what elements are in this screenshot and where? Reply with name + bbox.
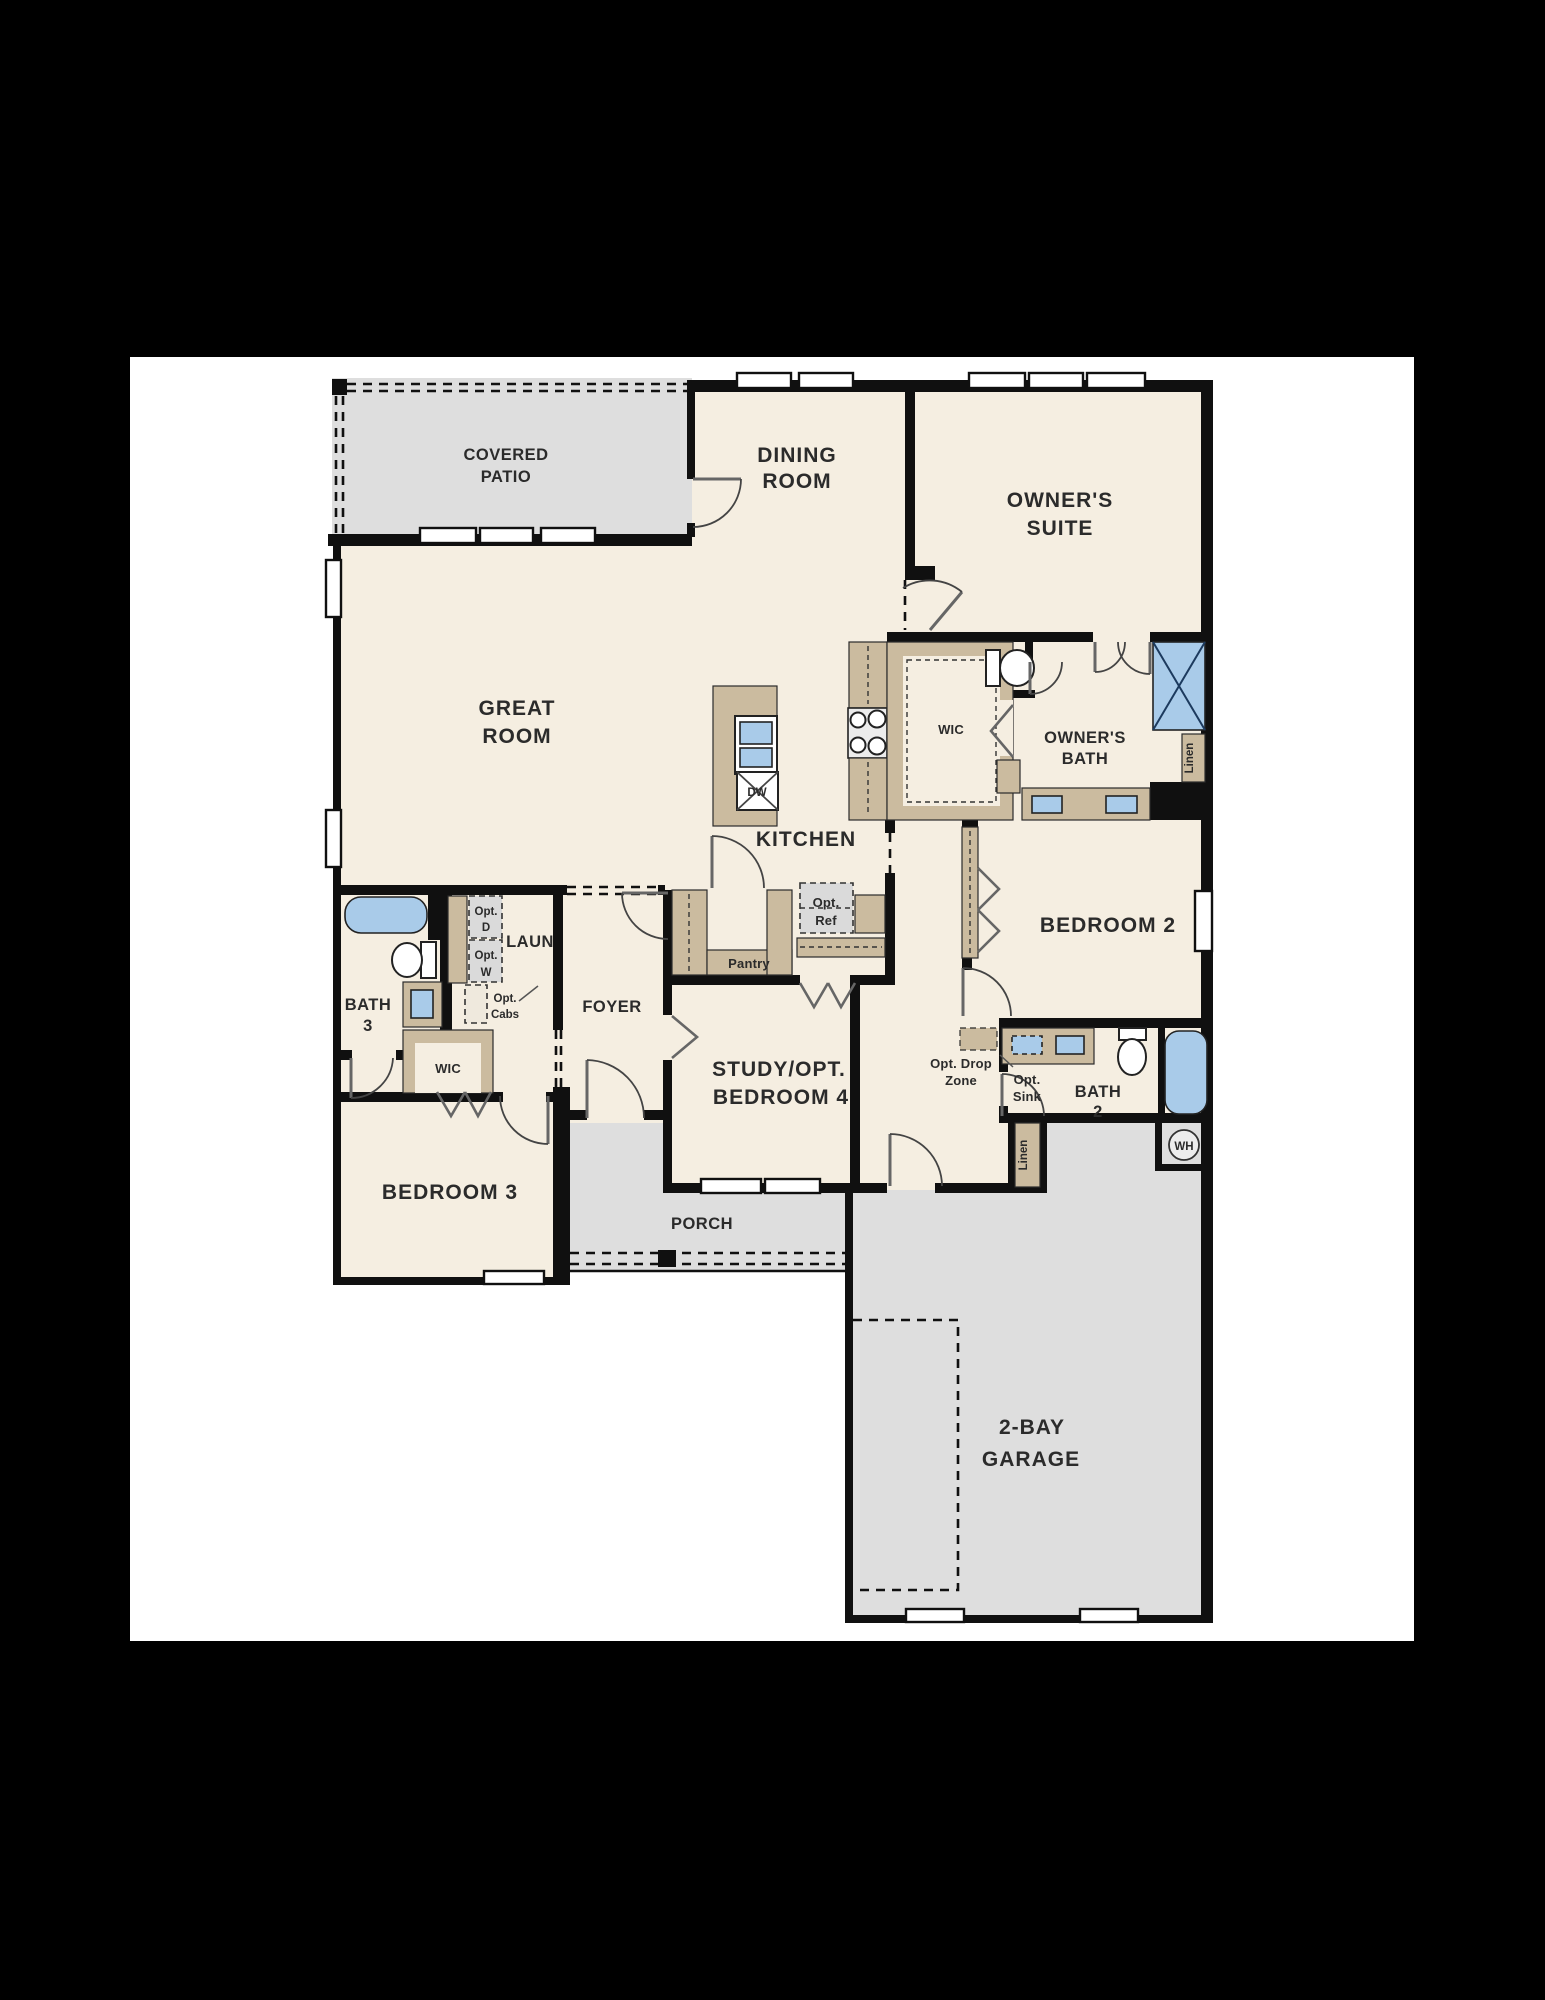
study-label: STUDY/OPT. bbox=[712, 1058, 846, 1081]
opt-washer-label: Opt. bbox=[475, 950, 498, 962]
opt-dryer-label: D bbox=[482, 922, 490, 934]
opt-ref-label: Opt. bbox=[813, 895, 840, 910]
opt-ref-label: Ref bbox=[815, 913, 837, 928]
opt-washer-label: W bbox=[481, 967, 492, 979]
opt-sink-label: Sink bbox=[1013, 1089, 1042, 1104]
sink-basin bbox=[740, 722, 772, 744]
burner-icon bbox=[851, 713, 866, 728]
window-icon bbox=[541, 528, 595, 543]
window-icon bbox=[420, 528, 476, 543]
toilet-bowl bbox=[392, 943, 422, 977]
toilet-bowl bbox=[1118, 1039, 1146, 1075]
owner-linen-label: Linen bbox=[1184, 743, 1196, 774]
window-icon bbox=[969, 373, 1025, 388]
window-icon bbox=[765, 1179, 820, 1193]
bath3-label: BATH bbox=[345, 996, 392, 1014]
sink-basin bbox=[740, 748, 772, 767]
window-icon bbox=[906, 1609, 964, 1622]
opt-cabs-label: Cabs bbox=[491, 1009, 519, 1021]
foyer-label: FOYER bbox=[582, 998, 641, 1016]
owners-suite-label: SUITE bbox=[1027, 517, 1094, 540]
window-icon bbox=[480, 528, 533, 543]
window-icon bbox=[1080, 1609, 1138, 1622]
bathtub bbox=[1165, 1031, 1207, 1114]
bedroom2-label: BEDROOM 2 bbox=[1040, 914, 1176, 937]
bedroom3-label: BEDROOM 3 bbox=[382, 1181, 518, 1204]
opt-sink-basin bbox=[1012, 1036, 1042, 1054]
dishwasher-label: DW bbox=[747, 787, 766, 799]
garage-floor bbox=[845, 1123, 1213, 1623]
kitchen-label: KITCHEN bbox=[756, 828, 856, 851]
bathtub bbox=[345, 897, 427, 933]
window-icon bbox=[701, 1179, 761, 1193]
burner-icon bbox=[851, 738, 866, 753]
covered-patio-label: COVERED bbox=[463, 446, 548, 464]
dining-room-label: DINING bbox=[757, 444, 837, 467]
owners-bath-label: OWNER'S bbox=[1044, 729, 1126, 747]
burner-icon bbox=[869, 738, 886, 755]
covered-patio-label: PATIO bbox=[481, 468, 531, 486]
bath2-sink bbox=[1056, 1036, 1084, 1054]
great-room-label: GREAT bbox=[479, 697, 556, 720]
pantry-label: Pantry bbox=[728, 956, 770, 971]
opt-drop-zone-label: Opt. Drop bbox=[930, 1056, 992, 1071]
opt-cabs-box bbox=[465, 985, 487, 1023]
porch-post bbox=[658, 1250, 676, 1267]
window-icon bbox=[484, 1271, 544, 1284]
wic-wall-step bbox=[997, 760, 1020, 793]
porch-label: PORCH bbox=[671, 1215, 733, 1233]
window-icon bbox=[799, 373, 853, 388]
window-icon bbox=[1029, 373, 1083, 388]
bath3-label: 3 bbox=[363, 1017, 373, 1035]
owners-suite-label: OWNER'S bbox=[1007, 489, 1114, 512]
opt-drop-zone-box bbox=[960, 1028, 997, 1050]
opt-cabs-label: Opt. bbox=[494, 993, 517, 1005]
window-icon bbox=[326, 560, 341, 617]
opt-drop-zone-label: Zone bbox=[945, 1073, 977, 1088]
water-heater-label: WH bbox=[1174, 1141, 1193, 1153]
opt-dryer-label: Opt. bbox=[475, 906, 498, 918]
window-icon bbox=[1195, 891, 1212, 951]
opt-sink-label: Opt. bbox=[1014, 1072, 1041, 1087]
laundry-counter bbox=[448, 896, 467, 983]
floorplan-svg: COVERED PATIO DINING ROOM GREAT ROOM OWN… bbox=[130, 357, 1414, 1641]
screenshot-stage: COVERED PATIO DINING ROOM GREAT ROOM OWN… bbox=[0, 0, 1545, 2000]
toilet-tank bbox=[986, 650, 1000, 686]
bedroom2-closet-wall bbox=[962, 827, 978, 958]
bath2-label: BATH bbox=[1075, 1083, 1122, 1101]
study-label: BEDROOM 4 bbox=[713, 1086, 849, 1109]
kitchen-counter bbox=[855, 895, 885, 933]
owner-wic-label: WIC bbox=[938, 722, 964, 737]
hall-wic-label: WIC bbox=[435, 1061, 461, 1076]
toilet-tank bbox=[421, 942, 436, 978]
window-icon bbox=[326, 810, 341, 867]
owner-sink bbox=[1032, 796, 1062, 813]
bath3-sink bbox=[411, 990, 433, 1018]
dining-room-label: ROOM bbox=[762, 470, 831, 493]
garage-label: 2-BAY bbox=[999, 1416, 1065, 1439]
burner-icon bbox=[869, 711, 886, 728]
garage-label: GARAGE bbox=[982, 1448, 1080, 1471]
bath2-label: 2 bbox=[1093, 1103, 1103, 1121]
pantry-wall bbox=[767, 890, 792, 975]
window-icon bbox=[737, 373, 791, 388]
floorplan-sheet: COVERED PATIO DINING ROOM GREAT ROOM OWN… bbox=[130, 357, 1414, 1641]
laundry-label: LAUN bbox=[506, 933, 554, 951]
great-room-label: ROOM bbox=[482, 725, 551, 748]
owners-bath-label: BATH bbox=[1062, 750, 1109, 768]
window-icon bbox=[1087, 373, 1145, 388]
hall-linen-label: Linen bbox=[1018, 1140, 1030, 1171]
owner-sink bbox=[1106, 796, 1137, 813]
